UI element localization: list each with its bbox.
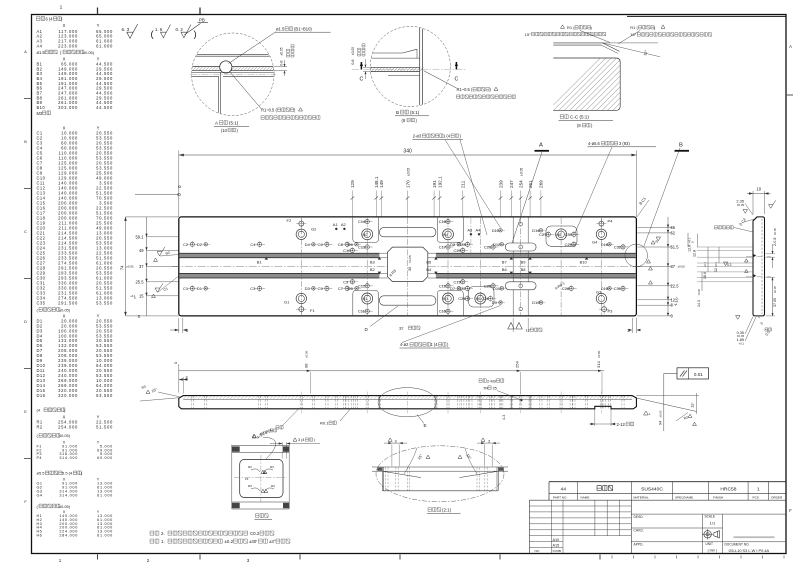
svg-text:62: 62 xyxy=(671,230,676,235)
svg-text:1/1: 1/1 xyxy=(710,520,716,525)
svg-text:E: E xyxy=(24,410,27,414)
svg-text:2-M3: 2-M3 xyxy=(487,378,496,383)
svg-text:C5: C5 xyxy=(318,286,324,291)
svg-text:H5: H5 xyxy=(476,296,482,301)
svg-text:192.1: 192.1 xyxy=(437,176,442,188)
svg-text:3: 3 xyxy=(395,438,397,443)
svg-text:±0.05): ±0.05) xyxy=(59,433,71,438)
svg-text:61.000: 61.000 xyxy=(97,533,113,537)
svg-text:D4: D4 xyxy=(305,242,311,247)
svg-text:±0.05): ±0.05) xyxy=(83,50,95,55)
svg-text:E: E xyxy=(424,423,427,428)
svg-text:61.000: 61.000 xyxy=(96,43,113,48)
svg-text:C10: C10 xyxy=(343,248,351,253)
svg-text:±30': ±30' xyxy=(249,539,257,544)
svg-text:±0.05: ±0.05 xyxy=(737,203,744,207)
svg-text:FINISH: FINISH xyxy=(713,495,723,499)
svg-text:P3: P3 xyxy=(608,309,614,314)
svg-text:R2: R2 xyxy=(37,424,43,429)
svg-text:(5:1): (5:1) xyxy=(229,121,239,126)
svg-text:±0.05: ±0.05 xyxy=(305,350,309,358)
svg-text:H1: H1 xyxy=(363,296,369,301)
svg-text:61.000: 61.000 xyxy=(97,493,113,497)
svg-text:C11: C11 xyxy=(358,309,366,314)
svg-text:D2: D2 xyxy=(197,242,203,247)
svg-text:NO.: NO. xyxy=(535,549,541,553)
svg-text:±0.05: ±0.05 xyxy=(406,168,410,176)
svg-text:B10: B10 xyxy=(580,259,588,264)
svg-text:14.3: 14.3 xyxy=(697,300,701,307)
svg-text:170: 170 xyxy=(405,180,410,188)
svg-text:B2: B2 xyxy=(370,267,376,272)
svg-text:B1: B1 xyxy=(257,259,263,264)
svg-text:G4: G4 xyxy=(37,493,43,497)
svg-text:0.01: 0.01 xyxy=(694,372,703,377)
svg-text:A: A xyxy=(539,143,543,149)
svg-text:51.500: 51.500 xyxy=(96,424,113,429)
svg-text:CHKD.: CHKD. xyxy=(634,529,644,533)
svg-text:PART NO.: PART NO. xyxy=(553,495,567,499)
svg-text:R3: R3 xyxy=(248,484,252,488)
svg-text:D: D xyxy=(24,320,27,324)
svg-text:2-12: 2-12 xyxy=(617,422,626,427)
svg-text:320.000: 320.000 xyxy=(58,393,78,398)
svg-text:H2: H2 xyxy=(363,232,369,237)
svg-text:1.: 1. xyxy=(161,539,165,544)
svg-text:): ) xyxy=(194,29,197,40)
svg-text:H4: H4 xyxy=(443,232,449,237)
svg-text:(10: (10 xyxy=(221,128,228,133)
svg-text:±0.05: ±0.05 xyxy=(408,255,412,263)
svg-text:ø5.5: ø5.5 xyxy=(37,471,46,476)
svg-text:ORDER: ORDER xyxy=(771,495,783,499)
svg-text:±0.05: ±0.05 xyxy=(126,265,134,269)
svg-text:1: 1 xyxy=(757,487,760,493)
svg-text:4-ø2: 4-ø2 xyxy=(400,342,409,347)
svg-text:25.5: 25.5 xyxy=(136,279,145,284)
svg-text:±0.05: ±0.05 xyxy=(351,47,355,55)
svg-text:±0.05: ±0.05 xyxy=(519,168,523,176)
svg-text:A4: A4 xyxy=(37,43,43,48)
svg-text:R1 (: R1 ( xyxy=(567,25,575,30)
svg-text:0. 2: 0. 2 xyxy=(176,27,184,32)
svg-text:(2:1): (2:1) xyxy=(442,508,452,513)
svg-text:25: 25 xyxy=(493,385,497,390)
svg-text:B4: B4 xyxy=(426,267,432,272)
svg-text:R3: R3 xyxy=(248,465,252,469)
svg-text:149: 149 xyxy=(379,180,384,188)
svg-text:D8: D8 xyxy=(450,242,456,247)
svg-text:B3: B3 xyxy=(370,259,376,264)
svg-text:±0.2: ±0.2 xyxy=(225,539,234,544)
svg-text:D6: D6 xyxy=(348,242,354,247)
svg-text:69.000: 69.000 xyxy=(97,456,113,460)
svg-text:B5: B5 xyxy=(426,259,432,264)
svg-text:C: C xyxy=(455,77,459,83)
svg-text:F: F xyxy=(789,508,792,513)
svg-text:2.: 2. xyxy=(161,531,165,536)
svg-text:C12: C12 xyxy=(358,283,366,288)
svg-text:SCALE: SCALE xyxy=(705,515,715,519)
svg-text:37.65: 37.65 xyxy=(773,298,777,307)
svg-text:223.000: 223.000 xyxy=(58,43,78,48)
svg-text:A: A xyxy=(789,44,792,49)
svg-text:C14: C14 xyxy=(358,219,366,224)
svg-text:C8: C8 xyxy=(338,242,344,247)
svg-text:51.5: 51.5 xyxy=(671,245,680,250)
svg-text:12: 12 xyxy=(714,268,718,272)
svg-text:284.000: 284.000 xyxy=(59,533,78,537)
svg-text:53.550: 53.550 xyxy=(96,300,113,305)
svg-text:340: 340 xyxy=(403,149,412,155)
svg-text:±0.05: ±0.05 xyxy=(773,286,777,293)
svg-text:247: 247 xyxy=(509,180,514,188)
svg-text:P4: P4 xyxy=(37,456,42,460)
svg-text:SPEC/NAME: SPEC/NAME xyxy=(675,495,693,499)
svg-text:74: 74 xyxy=(120,265,125,270)
svg-text:5.5 (4: 5.5 (4 xyxy=(62,471,73,476)
svg-text:C27: C27 xyxy=(539,232,547,237)
svg-text:53.550: 53.550 xyxy=(96,393,113,398)
svg-text:44: 44 xyxy=(560,487,566,493)
svg-text:+0.1: +0.1 xyxy=(738,341,744,345)
svg-text:R1~0.5 (: R1~0.5 ( xyxy=(261,108,277,113)
svg-text:R0.1: R0.1 xyxy=(320,421,329,426)
svg-text:±0.05: ±0.05 xyxy=(678,265,686,269)
svg-text:C15: C15 xyxy=(439,309,447,314)
svg-text:94: 94 xyxy=(659,421,663,425)
svg-text:C1: C1 xyxy=(183,286,189,291)
svg-text:D16: D16 xyxy=(601,242,609,247)
svg-text:314.000: 314.000 xyxy=(59,456,78,460)
svg-text:B7: B7 xyxy=(502,259,508,264)
svg-text:314: 314 xyxy=(596,361,601,368)
svg-text:C18: C18 xyxy=(439,219,447,224)
svg-text:G5-L10 S3 L.W I P0.4A: G5-L10 S3 L.W I P0.4A xyxy=(729,548,770,553)
svg-text:0.2: 0.2 xyxy=(727,263,732,267)
svg-text:SYMB: SYMB xyxy=(553,549,562,553)
svg-text:C0.2: C0.2 xyxy=(250,531,260,536)
svg-text:H6: H6 xyxy=(37,533,43,537)
svg-text:UNIT: UNIT xyxy=(706,542,713,546)
svg-text:C13: C13 xyxy=(358,245,366,250)
svg-text:C4: C4 xyxy=(250,242,256,247)
svg-text:R1~0.5 (: R1~0.5 ( xyxy=(457,87,473,92)
svg-text:X: X xyxy=(63,23,66,28)
svg-text:1: 1 xyxy=(60,5,63,11)
svg-text:37: 37 xyxy=(671,264,676,269)
svg-text:H6: H6 xyxy=(556,232,562,237)
svg-text:SUS440C: SUS440C xyxy=(641,487,663,493)
svg-text:A3: A3 xyxy=(467,228,473,233)
svg-text:±0.1: ±0.1 xyxy=(714,261,718,267)
svg-text:B6: B6 xyxy=(502,267,508,272)
svg-text:314.000: 314.000 xyxy=(59,493,78,497)
svg-text:A2: A2 xyxy=(341,222,347,227)
svg-text:15: 15 xyxy=(139,293,144,298)
svg-text:G1: G1 xyxy=(284,300,290,305)
svg-text:22.5: 22.5 xyxy=(671,283,680,288)
svg-text:10: 10 xyxy=(757,187,762,192)
svg-text:( mm ): ( mm ) xyxy=(708,549,718,553)
svg-text:D15: D15 xyxy=(601,286,609,291)
svg-text:D7: D7 xyxy=(450,286,456,291)
svg-text:R2: R2 xyxy=(263,471,267,475)
svg-text:C: C xyxy=(360,77,364,83)
svg-text:HRC58: HRC58 xyxy=(720,487,736,493)
svg-text:254: 254 xyxy=(518,180,523,188)
svg-text:C2: C2 xyxy=(183,242,189,247)
svg-text:191: 191 xyxy=(432,180,437,188)
svg-text:APPD.: APPD. xyxy=(634,543,644,547)
svg-text:G3: G3 xyxy=(596,290,602,295)
svg-text:2-0.8: 2-0.8 xyxy=(773,238,777,246)
svg-text:PCS: PCS xyxy=(753,495,759,499)
svg-text:(B1~B10): (B1~B10) xyxy=(294,27,312,32)
svg-text:±3°: ±3° xyxy=(269,539,276,544)
svg-text:+0.1: +0.1 xyxy=(703,261,707,267)
svg-text:A10: A10 xyxy=(553,538,560,542)
svg-text:B: B xyxy=(679,143,683,149)
svg-text:129: 129 xyxy=(350,180,355,188)
svg-text:37: 37 xyxy=(139,264,144,269)
svg-text:F1: F1 xyxy=(310,308,315,313)
svg-text:2-ø3: 2-ø3 xyxy=(413,134,422,139)
svg-text:B10: B10 xyxy=(37,105,46,110)
svg-text:B: B xyxy=(396,110,399,115)
svg-text:F2: F2 xyxy=(287,218,292,223)
svg-text:R1 (: R1 ( xyxy=(630,25,638,30)
svg-text:3 (93): 3 (93) xyxy=(619,141,630,146)
svg-text:C28: C28 xyxy=(562,286,570,291)
svg-text:TR: TR xyxy=(483,385,488,390)
svg-text:15: 15 xyxy=(245,477,249,481)
svg-text:D13: D13 xyxy=(532,300,540,305)
svg-text:3: 3 xyxy=(488,438,490,443)
svg-text:18.6: 18.6 xyxy=(703,272,707,279)
svg-text:0: 0 xyxy=(177,185,182,188)
svg-text:59.1: 59.1 xyxy=(136,234,145,239)
svg-text:32: 32 xyxy=(399,326,404,331)
svg-text:C-C (5:1): C-C (5:1) xyxy=(570,115,589,120)
svg-text:C32: C32 xyxy=(614,244,622,249)
svg-text:C35: C35 xyxy=(37,300,46,305)
svg-text:B: B xyxy=(24,140,27,144)
svg-text:±0.05: ±0.05 xyxy=(659,410,663,417)
svg-text:±0.05: ±0.05 xyxy=(697,288,701,295)
svg-text:303.000: 303.000 xyxy=(58,105,78,110)
svg-text:Y: Y xyxy=(97,23,100,28)
svg-text:A: A xyxy=(24,50,27,54)
svg-text:4-3: 4-3 xyxy=(502,415,506,420)
svg-text:NAME: NAME xyxy=(581,495,590,499)
svg-text:D10: D10 xyxy=(492,228,500,233)
svg-text:C6: C6 xyxy=(318,242,324,247)
svg-text:A: A xyxy=(215,121,218,126)
svg-text:M3: M3 xyxy=(37,111,43,116)
svg-text:3 (4: 3 (4 xyxy=(298,438,305,442)
svg-text:(5:1): (5:1) xyxy=(410,110,420,115)
svg-text:C17: C17 xyxy=(439,245,447,250)
svg-text:D11: D11 xyxy=(493,286,501,291)
svg-text:44.500: 44.500 xyxy=(96,105,113,110)
svg-text:C31: C31 xyxy=(614,286,622,291)
svg-text:0.8: 0.8 xyxy=(280,61,284,66)
svg-text:C19: C19 xyxy=(454,279,462,284)
svg-text:±0.05: ±0.05 xyxy=(597,350,601,358)
svg-text:D9: D9 xyxy=(492,300,498,305)
svg-text:C: C xyxy=(24,230,27,234)
svg-text:239: 239 xyxy=(498,180,503,188)
svg-text:15°: 15° xyxy=(525,32,531,37)
svg-text:C16: C16 xyxy=(439,283,447,288)
svg-text:A4: A4 xyxy=(476,228,482,233)
svg-text:291.500: 291.500 xyxy=(58,300,78,305)
svg-text:R3: R3 xyxy=(270,465,274,469)
svg-text:B8: B8 xyxy=(521,267,527,272)
svg-text:P4: P4 xyxy=(608,219,614,224)
svg-text:±0.05): ±0.05) xyxy=(59,307,71,312)
svg-text:6. 3: 6. 3 xyxy=(122,27,130,32)
svg-text:MATERIAL: MATERIAL xyxy=(634,495,650,499)
svg-text:ø1.5: ø1.5 xyxy=(37,50,46,55)
svg-text:A1: A1 xyxy=(333,222,339,227)
svg-text:C26: C26 xyxy=(484,245,492,250)
svg-text:DOCUMENT NO.: DOCUMENT NO. xyxy=(725,542,750,546)
svg-text:C9: C9 xyxy=(343,279,349,284)
svg-text:C25: C25 xyxy=(484,283,492,288)
svg-text:211: 211 xyxy=(461,180,466,188)
svg-text:R3: R3 xyxy=(271,484,275,488)
svg-text:D5: D5 xyxy=(348,286,354,291)
svg-text:H3: H3 xyxy=(443,296,449,301)
svg-text:1 (4: 1 (4 xyxy=(431,342,439,347)
svg-text:254.000: 254.000 xyxy=(58,424,78,429)
svg-text:C29: C29 xyxy=(565,242,573,247)
svg-text:66: 66 xyxy=(671,225,676,230)
svg-text:D14: D14 xyxy=(532,228,540,233)
svg-text:G4: G4 xyxy=(592,240,598,245)
svg-text:B9: B9 xyxy=(521,259,527,264)
svg-text:98: 98 xyxy=(304,363,309,368)
svg-text:C30: C30 xyxy=(565,232,573,237)
svg-text:±0.05: ±0.05 xyxy=(280,47,284,55)
svg-text:C7: C7 xyxy=(338,286,344,291)
svg-text:12.8: 12.8 xyxy=(693,250,697,257)
svg-text:254: 254 xyxy=(515,361,520,368)
svg-text:±0.05: ±0.05 xyxy=(773,228,777,235)
svg-text:0.8: 0.8 xyxy=(351,60,355,65)
svg-text:C3: C3 xyxy=(250,286,256,291)
svg-text:D12: D12 xyxy=(493,242,501,247)
svg-text:DESD.: DESD. xyxy=(634,515,644,519)
svg-text:±0.05): ±0.05) xyxy=(59,504,71,509)
svg-text:G2: G2 xyxy=(311,227,317,232)
svg-text:C20: C20 xyxy=(454,248,462,253)
svg-text:6 (4: 6 (4 xyxy=(46,17,54,22)
svg-text:A15: A15 xyxy=(553,544,560,548)
svg-text:4-ø5.6: 4-ø5.6 xyxy=(588,141,601,146)
svg-text:ø1.5: ø1.5 xyxy=(276,27,285,32)
svg-text:12.8: 12.8 xyxy=(688,245,692,252)
svg-text:1. 6: 1. 6 xyxy=(155,27,163,32)
svg-text:C24: C24 xyxy=(481,296,489,301)
svg-text:D16: D16 xyxy=(37,393,46,398)
svg-text:D3: D3 xyxy=(305,286,311,291)
svg-text:PB: PB xyxy=(199,17,205,22)
svg-text:1 (4: 1 (4 xyxy=(443,134,451,139)
svg-text:269: 269 xyxy=(539,180,544,188)
svg-text:49: 49 xyxy=(139,248,144,253)
svg-text:D1: D1 xyxy=(197,286,203,291)
svg-text:C21: C21 xyxy=(458,296,466,301)
